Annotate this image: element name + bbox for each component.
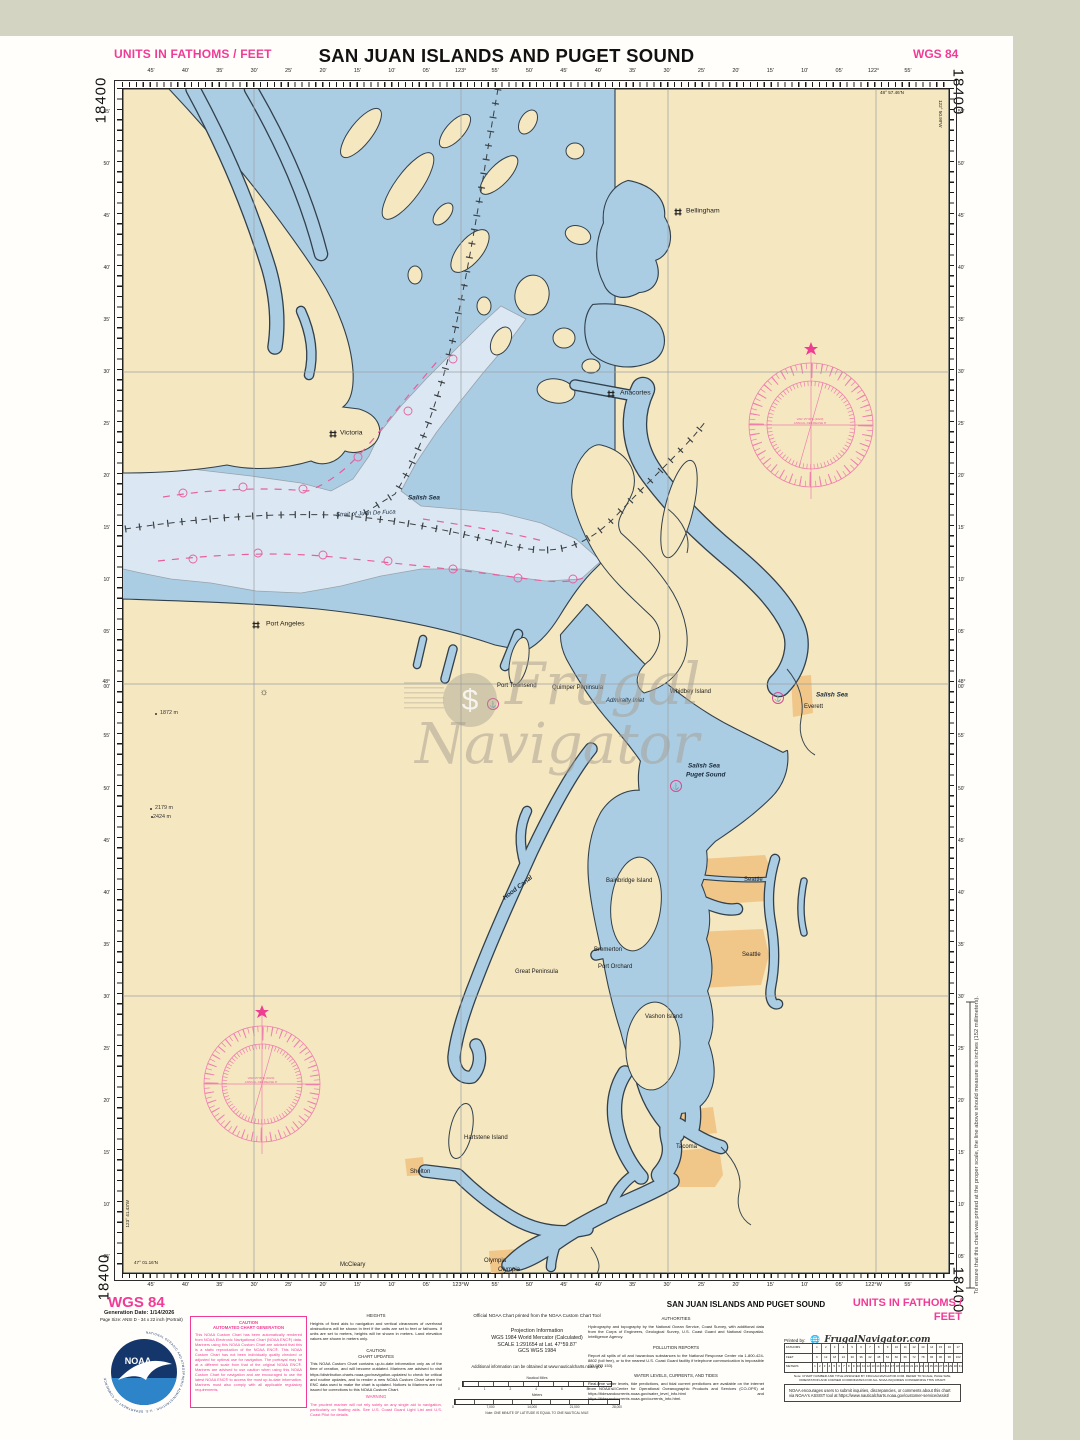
table-cell: 11: [900, 1344, 909, 1353]
table-cell: 90: [936, 1354, 945, 1363]
table-cell: 42: [865, 1354, 874, 1363]
ruler-label: 25': [277, 1282, 301, 1293]
ruler-label: 05': [827, 68, 851, 79]
label-puget-sound: Puget Sound: [686, 772, 725, 779]
table-cell: 24: [838, 1354, 847, 1363]
ruler-label: 30': [958, 366, 965, 378]
label-hartstene-island: Hartstene Island: [464, 1135, 508, 1141]
label-seattle-south: Seattle: [742, 952, 761, 958]
ruler-label: 55': [896, 1282, 920, 1293]
label-salish-sea-puget: Salish Sea: [688, 763, 720, 770]
ruler-label: 55': [896, 68, 920, 79]
label-olympia-2: Olympia: [498, 1267, 520, 1273]
table-cell: 4: [838, 1344, 847, 1353]
ruler-label: 40': [958, 887, 965, 899]
heights-body: Heights of fixed aids to navigation and …: [310, 1321, 442, 1342]
ruler-label: 45': [958, 210, 965, 222]
table-cell: 30: [847, 1354, 856, 1363]
ruler-label: 05': [414, 68, 438, 79]
peak-icon: ☼: [259, 687, 268, 698]
table-cell: 36: [856, 1354, 865, 1363]
rose-variation-north: VAR 15°30'E (2020)ANNUAL DECREASE 8': [775, 418, 845, 426]
ruler-label: 48° 00': [102, 679, 110, 691]
table-cell: 54: [883, 1354, 892, 1363]
corner-coord-lon-bl: 123° 41.43'W: [125, 1200, 130, 1228]
ruler-label: 50': [103, 783, 110, 795]
scale-note: Note: ONE MINUTE OF LATITUDE IS EQUAL TO…: [452, 1411, 622, 1415]
pollution-note: POLLUTION REPORTS Report all spills of o…: [588, 1345, 764, 1368]
ruler-label: 30': [655, 68, 679, 79]
svg-text:⚓: ⚓: [672, 783, 679, 791]
ruler-label: 45': [552, 68, 576, 79]
table-cell: 12: [821, 1354, 830, 1363]
datum-label-top: WGS 84: [913, 47, 958, 61]
table-row-fathoms: FATHOMS 1234567891011121314151617: [785, 1344, 962, 1353]
table-cell: 31: [957, 1363, 962, 1372]
ruler-label: 55': [483, 68, 507, 79]
label-great-peninsula: Great Peninsula: [515, 969, 558, 975]
assist-box-wrap: NOAA encourages users to submit inquirie…: [784, 1384, 961, 1402]
ruler-label: 35': [958, 939, 965, 951]
label-salish-sea-strait: Salish Sea: [408, 495, 440, 502]
ruler-label: 15': [103, 523, 110, 535]
ruler-label: 40': [173, 68, 197, 79]
ruler-label: 122°W: [862, 1282, 886, 1293]
title-bottom: SAN JUAN ISLANDS AND PUGET SOUND: [640, 1300, 852, 1310]
minute-ticks-left: [117, 88, 122, 1272]
noaa-logo: NOAA NATIONAL OCEANIC AND ATMOSPHERIC AD…: [100, 1328, 188, 1416]
table-cell: 7: [865, 1344, 874, 1353]
table-cell: 1: [813, 1344, 821, 1353]
ruler-label: 55': [483, 1282, 507, 1293]
pollution-body: Report all spills of oil and hazardous s…: [588, 1353, 764, 1369]
ruler-label: 122°: [862, 68, 886, 79]
units-conversion-table: FATHOMS 1234567891011121314151617 FEET 6…: [784, 1343, 963, 1373]
table-cell: 84: [927, 1354, 936, 1363]
label-anacortes: Anacortes: [620, 390, 651, 397]
m-tick: 14,000: [527, 1405, 537, 1409]
table-cell: 12: [909, 1344, 918, 1353]
water-levels-body: Real-time water levels, tide predictions…: [588, 1381, 764, 1402]
label-port-angeles: Port Angeles: [266, 621, 305, 628]
ruler-label: 15': [958, 523, 965, 535]
ruler-label: 20': [958, 1095, 965, 1107]
label-seattle-north: Seattle: [744, 877, 763, 883]
table-cell: 78: [918, 1354, 927, 1363]
ruler-label: 10': [958, 1200, 965, 1212]
ruler-label: 45': [139, 1282, 163, 1293]
table-cell: 48: [874, 1354, 883, 1363]
m-tick: 28,000: [612, 1405, 622, 1409]
table-cell: 18: [830, 1354, 839, 1363]
ruler-label: 30': [242, 1282, 266, 1293]
row-label: FEET: [785, 1354, 813, 1363]
table-cell: 5: [847, 1344, 856, 1353]
ruler-label: 20': [958, 471, 965, 483]
nm-tick: 1: [484, 1387, 486, 1391]
caution-box-body: This NOAA Custom Chart has been automati…: [195, 1333, 302, 1393]
authorities-note: AUTHORITIES Hydrography and topography b…: [588, 1316, 764, 1339]
ruler-label: 35': [621, 68, 645, 79]
longitude-ruler-top: 45'40'35'30'25'20'15'10'05'123°55'50'45'…: [139, 68, 920, 79]
water-levels-title: WATER LEVELS, CURRENTS, AND TIDES: [588, 1373, 764, 1379]
warning-note: WARNING The prudent mariner will not rel…: [310, 1394, 442, 1417]
ruler-label: 05': [827, 1282, 851, 1293]
ruler-label: 10': [793, 68, 817, 79]
water-levels-note: WATER LEVELS, CURRENTS, AND TIDES Real-t…: [588, 1373, 764, 1401]
label-port-orchard: Port Orchard: [598, 964, 632, 970]
print-scale-note: To ensure that this chart was printed at…: [974, 996, 980, 1294]
rose-variation-south: VAR 15°30'E (2020)ANNUAL DECREASE 8': [226, 1077, 296, 1085]
table-cell: 102: [953, 1354, 962, 1363]
ruler-label: 40': [586, 68, 610, 79]
ruler-label: 15': [758, 1282, 782, 1293]
table-note: Note: CHART NUMBER AND TITLE ASSIGNED BY…: [784, 1374, 961, 1382]
ruler-label: 55': [103, 731, 110, 743]
table-cell: 9: [883, 1344, 892, 1353]
nm-tick: 0: [458, 1387, 460, 1391]
label-everett: Everett: [804, 704, 823, 710]
ruler-label: 50': [517, 1282, 541, 1293]
ruler-label: 25': [690, 68, 714, 79]
label-victoria: Victoria: [340, 430, 363, 437]
ruler-label: 25': [958, 1043, 965, 1055]
ruler-label: 50': [103, 158, 110, 170]
ruler-label: 45': [552, 1282, 576, 1293]
ruler-label: 45': [958, 835, 965, 847]
chart-title: SAN JUAN ISLANDS AND PUGET SOUND: [0, 45, 1013, 67]
table-cell: 13: [918, 1344, 927, 1353]
label-bremerton: Bremerton: [594, 947, 622, 953]
label-salish-sea-everett: Salish Sea: [816, 692, 848, 699]
latitude-ruler-left: 55'50'45'40'35'30'25'20'15'10'05'48° 00'…: [74, 106, 110, 1264]
minute-ticks-top: [122, 82, 948, 87]
warning-title: WARNING: [310, 1394, 442, 1400]
ruler-label: 25': [277, 68, 301, 79]
table-cell: 3: [830, 1344, 839, 1353]
ruler-label: 35': [958, 314, 965, 326]
nm-tick: 2: [509, 1387, 511, 1391]
ruler-label: 20': [311, 1282, 335, 1293]
ruler-label: 35': [103, 314, 110, 326]
label-elevation-1872: 1872 m: [160, 710, 178, 716]
ruler-label: 30': [958, 991, 965, 1003]
table-cell: 17: [953, 1344, 962, 1353]
corner-coord-lon-tr: 122° 50.99'W: [938, 100, 943, 128]
table-cell: 14: [927, 1344, 936, 1353]
nautical-chart-page: UNITS IN FATHOMS / FEET SAN JUAN ISLANDS…: [0, 0, 1080, 1440]
svg-text:⚓: ⚓: [774, 695, 781, 703]
ruler-label: 10': [958, 575, 965, 587]
noaa-wordmark: NOAA: [125, 1356, 152, 1366]
table-cell: 8: [874, 1344, 883, 1353]
chart-updates-title: CAUTION CHART UPDATES: [310, 1348, 442, 1359]
table-cell: 16: [944, 1344, 953, 1353]
ruler-label: 40': [103, 887, 110, 899]
ruler-label: 55': [958, 106, 965, 118]
warning-body: The prudent mariner will not rely solely…: [310, 1402, 442, 1418]
ruler-label: 15': [103, 1148, 110, 1160]
m-tick: 21,000: [570, 1405, 580, 1409]
ruler-label: 35': [621, 1282, 645, 1293]
heights-note: HEIGHTS Heights of fixed aids to navigat…: [310, 1313, 442, 1341]
ruler-label: 40': [586, 1282, 610, 1293]
ruler-label: 10': [793, 1282, 817, 1293]
ruler-label: 20': [103, 1095, 110, 1107]
ruler-label: 30': [655, 1282, 679, 1293]
ruler-label: 10': [380, 68, 404, 79]
table-cell: 60: [891, 1354, 900, 1363]
table-cell: 6: [856, 1344, 865, 1353]
ruler-label: 123°W: [449, 1282, 473, 1293]
table-cell: 2: [821, 1344, 830, 1353]
ruler-label: 05': [958, 1252, 965, 1264]
table-row-feet: FEET 6121824303642485460667278849096102: [785, 1353, 962, 1363]
label-quimper-peninsula: Quimper Peninsula: [552, 685, 603, 691]
label-elevation-2424: 2424 m: [153, 814, 171, 820]
label-elevation-2179: 2179 m: [155, 805, 173, 811]
ruler-label: 25': [958, 418, 965, 430]
authorities-title: AUTHORITIES: [588, 1316, 764, 1322]
page-size: Page Size: ANSI D - 34 x 22 inch (Portra…: [100, 1317, 183, 1323]
nm-tick: 4: [535, 1387, 537, 1391]
nm-tick: 6: [561, 1387, 563, 1391]
longitude-ruler-bottom: 45'40'35'30'25'20'15'10'05'123°W55'50'45…: [139, 1282, 920, 1293]
chart-updates-body: This NOAA Custom Chart contains up-to-da…: [310, 1361, 442, 1392]
ruler-label: 48° 00': [958, 679, 966, 691]
chart-updates-note: CAUTION CHART UPDATES This NOAA Custom C…: [310, 1348, 442, 1392]
label-mccleary: McCleary: [340, 1262, 365, 1268]
ruler-label: 25': [690, 1282, 714, 1293]
ruler-label: 10': [103, 575, 110, 587]
corner-coord-lat-tr: 48° 57.46'N: [880, 90, 904, 95]
table-cell: 15: [936, 1344, 945, 1353]
row-label: METERS: [785, 1363, 813, 1372]
ruler-label: 15': [345, 68, 369, 79]
ruler-label: 35': [103, 939, 110, 951]
ruler-label: 10': [380, 1282, 404, 1293]
ruler-label: 05': [414, 1282, 438, 1293]
m-tick: 0: [452, 1405, 454, 1409]
table-row-meters: METERS 123456789101112131415161718192021…: [785, 1362, 962, 1372]
ruler-label: 10': [103, 1200, 110, 1212]
ruler-label: 45': [103, 835, 110, 847]
authorities-body: Hydrography and topography by the Nation…: [588, 1324, 764, 1340]
row-label: FATHOMS: [785, 1344, 813, 1353]
ruler-label: 20': [724, 68, 748, 79]
ruler-label: 05': [103, 1252, 110, 1264]
assist-box: NOAA encourages users to submit inquirie…: [784, 1384, 961, 1402]
chart-map: ⚓ ⚓ ⚓: [122, 88, 950, 1274]
ruler-label: 55': [958, 731, 965, 743]
ruler-label: 15': [345, 1282, 369, 1293]
ruler-label: 20': [103, 471, 110, 483]
table-cell: 6: [813, 1354, 821, 1363]
ruler-label: 30': [242, 68, 266, 79]
ruler-label: 40': [103, 262, 110, 274]
ruler-label: 15': [958, 1148, 965, 1160]
label-olympia-1: Olympia: [484, 1258, 506, 1264]
label-shelton: Shelton: [410, 1169, 430, 1175]
table-cell: 10: [891, 1344, 900, 1353]
ruler-label: 05': [103, 627, 110, 639]
ruler-label: 05': [958, 627, 965, 639]
pollution-title: POLLUTION REPORTS: [588, 1345, 764, 1351]
ruler-label: 20': [311, 68, 335, 79]
corner-coord-lat-bl: 47° 01.16'N: [134, 1260, 158, 1265]
label-port-townsend: Port Townsend: [497, 683, 537, 689]
ruler-label: 45': [103, 210, 110, 222]
ruler-label: 40': [173, 1282, 197, 1293]
m-tick: 7,000: [487, 1405, 495, 1409]
svg-text:⚓: ⚓: [489, 701, 496, 709]
table-cell: 96: [944, 1354, 953, 1363]
units-label-bottom: UNITS IN FATHOMS / FEET: [826, 1296, 962, 1325]
label-bellingham: Bellingham: [686, 208, 720, 215]
caution-box: CAUTION AUTOMATED CHART GENERATION This …: [190, 1316, 307, 1408]
ruler-label: 55': [103, 106, 110, 118]
caution-box-title: CAUTION AUTOMATED CHART GENERATION: [195, 1320, 302, 1331]
ruler-label: 50': [958, 783, 965, 795]
ruler-label: 123°: [449, 68, 473, 79]
ruler-label: 15': [758, 68, 782, 79]
ruler-label: 50': [958, 158, 965, 170]
ruler-label: 30': [103, 991, 110, 1003]
label-tacoma: Tacoma: [676, 1144, 697, 1150]
table-cell: 66: [900, 1354, 909, 1363]
print-scale-check: To ensure that this chart was printed at…: [966, 1000, 980, 1290]
ruler-label: 30': [103, 366, 110, 378]
ruler-label: 25': [103, 418, 110, 430]
ruler-label: 25': [103, 1043, 110, 1055]
ruler-label: 35': [208, 1282, 232, 1293]
ruler-label: 50': [517, 68, 541, 79]
label-whidbey-island: Whidbey Island: [670, 689, 711, 695]
label-vashon-island: Vashon Island: [645, 1014, 683, 1020]
ruler-label: 20': [724, 1282, 748, 1293]
ruler-label: 40': [958, 262, 965, 274]
ruler-label: 45': [139, 68, 163, 79]
m-bar-ticks: 07,00014,00021,00028,000: [452, 1405, 622, 1409]
label-admiralty-inlet: Admiralty Inlet: [606, 698, 644, 704]
heights-title: HEIGHTS: [310, 1313, 442, 1319]
label-bainbridge-island: Bainbridge Island: [606, 878, 652, 884]
ruler-label: 35': [208, 68, 232, 79]
table-cell: 72: [909, 1354, 918, 1363]
